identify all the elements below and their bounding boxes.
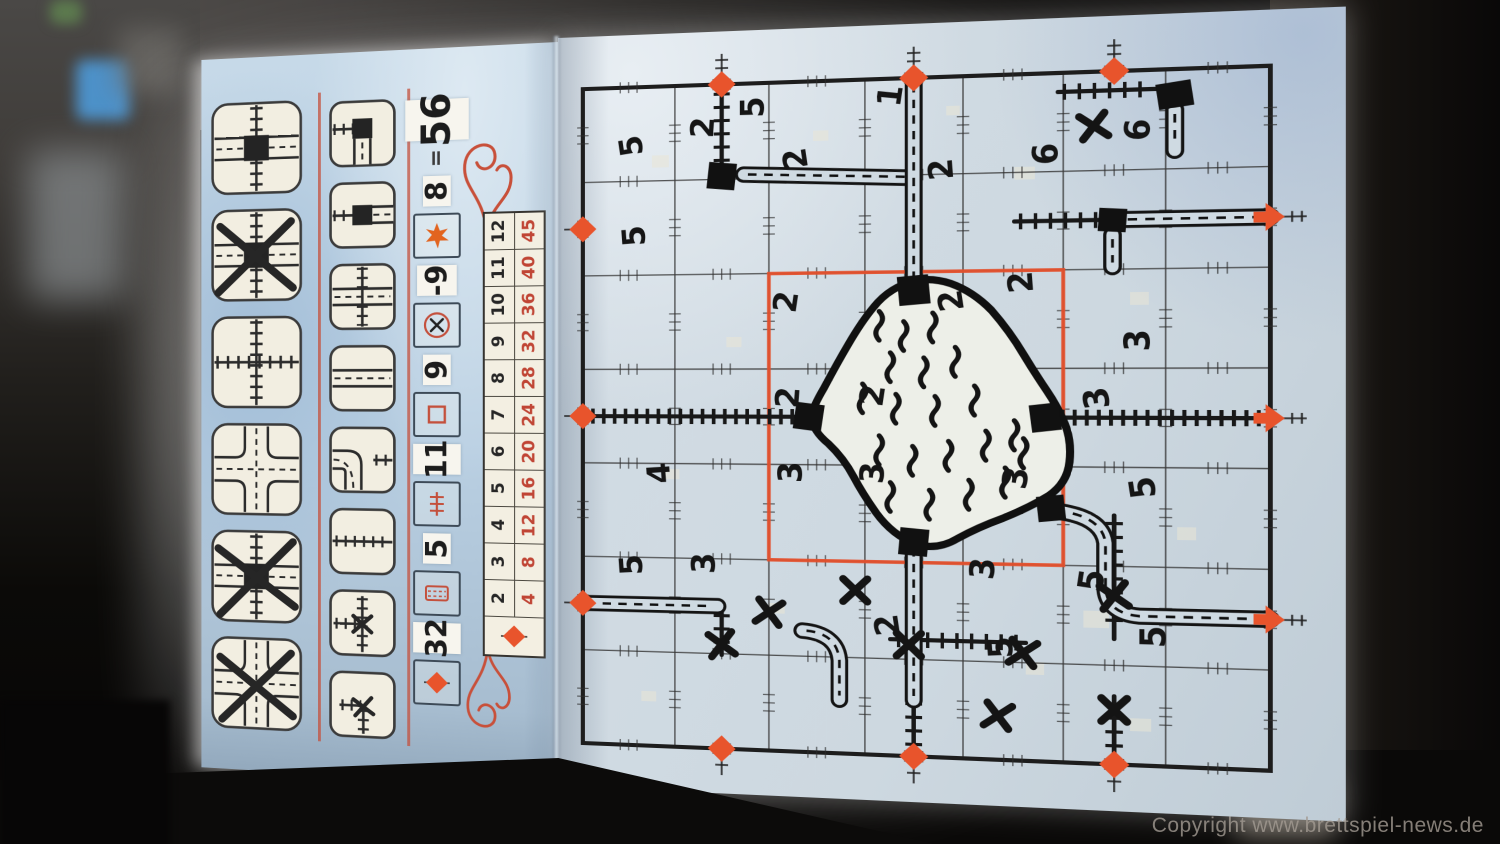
exits-table-row: 1036	[485, 286, 544, 323]
cell-number: 3	[1118, 329, 1159, 351]
score-entry: 8	[423, 175, 451, 206]
cell-number: 4	[640, 461, 678, 484]
cell-number: 2	[921, 157, 962, 182]
exits-count-cell: 12	[485, 213, 515, 249]
exits-diamond-icon	[485, 617, 544, 657]
cell-number: 3	[853, 461, 893, 485]
score-entry-value: 9	[423, 360, 452, 380]
station-corner-tile-icon	[328, 97, 398, 170]
exit-diamond-icon	[899, 742, 928, 770]
overpass-station-tile-crossed-icon	[207, 527, 307, 627]
exits-points-cell: 28	[515, 360, 544, 396]
score-entry: -9	[417, 265, 457, 296]
exits-points-cell: 12	[515, 507, 544, 543]
exit-diamond-icon	[1099, 57, 1129, 86]
exits-count-cell: 7	[485, 397, 515, 433]
longest-road-icon	[413, 570, 461, 617]
road-rail-crossing-tile-icon	[328, 261, 398, 332]
road-straight-tile-icon	[328, 343, 398, 413]
exits-table-row: 24	[485, 580, 544, 619]
exits-table-row: 1245	[485, 212, 544, 250]
play-board: 5552122662223223433355335255	[558, 7, 1346, 822]
errors-icon	[413, 302, 461, 348]
score-entry: 32	[413, 622, 461, 654]
exits-table-row: 516	[485, 470, 544, 508]
exits-points-cell: 24	[515, 397, 544, 433]
rail-crossroad-tile-icon	[207, 313, 307, 411]
equals-sign: =	[426, 149, 448, 168]
page-fold	[553, 36, 560, 788]
cell-number: 3	[686, 552, 723, 574]
longest-rail-icon	[413, 481, 461, 527]
grid-line	[583, 650, 1271, 670]
exits-count-cell: 6	[485, 434, 515, 470]
exits-count-cell: 5	[485, 470, 515, 506]
score-legend-page: 56=8-9911532 124511401036932828724620516…	[201, 42, 558, 788]
exits-count-cell: 2	[485, 580, 515, 617]
overpass-station-tile-crossed-icon	[207, 205, 307, 305]
exits-table-row: 932	[485, 323, 544, 360]
score-strip: 56=8-9911532	[411, 98, 463, 706]
exits-points-cell: 8	[515, 544, 544, 581]
exit-arrow-icon	[1254, 404, 1285, 432]
cell-number: 5	[734, 96, 772, 119]
exits-points-cell: 45	[515, 212, 544, 249]
road-corner-rail-tile-icon	[328, 425, 398, 496]
dice-tiles-column	[328, 97, 400, 742]
exits-points-cell: 36	[515, 286, 544, 322]
cell-number: 3	[772, 461, 810, 483]
exits-count-cell: 11	[485, 250, 515, 286]
rail-straight-tile-icon	[328, 506, 398, 578]
divider-rule	[318, 93, 320, 742]
exit-arrow-icon	[1254, 203, 1285, 232]
cell-number: 2	[1000, 270, 1042, 295]
score-entry: 9	[423, 355, 451, 386]
center-cells-icon	[413, 392, 461, 437]
cell-number: 3	[963, 556, 1004, 581]
cell-number: 2	[766, 289, 807, 315]
exit-diamond-icon	[1099, 750, 1129, 779]
cell-number: 6	[1117, 118, 1160, 142]
road-crossroad-tile-icon	[207, 420, 307, 519]
exits-count-cell: 8	[485, 360, 515, 396]
photo-scene: 56=8-9911532 124511401036932828724620516…	[0, 0, 1500, 844]
star-icon	[413, 213, 461, 259]
exits-points-cell: 20	[515, 434, 544, 470]
booklet: 56=8-9911532 124511401036932828724620516…	[0, 0, 1500, 844]
score-entry: 5	[423, 533, 451, 564]
exits-diamond-icon	[413, 659, 461, 706]
cell-number: 3	[1075, 385, 1119, 412]
cell-number: 5	[612, 133, 651, 160]
exits-points-cell: 4	[515, 581, 544, 618]
foreground-shadow	[0, 700, 170, 844]
exits-score-table: 1245114010369328287246205164123824	[483, 210, 546, 658]
score-entry-value: 8	[423, 181, 452, 202]
score-entry-value: 5	[423, 538, 452, 559]
exit-diamond-icon	[708, 71, 736, 98]
score-entry-value: -9	[423, 264, 452, 296]
road-crossroad-tile-crossed-icon	[207, 633, 307, 735]
exits-table-row: 724	[485, 397, 544, 434]
exits-table-row: 1140	[485, 249, 544, 287]
divider-rule	[407, 89, 409, 746]
exits-table-row: 620	[485, 434, 544, 471]
exits-points-cell: 16	[515, 470, 544, 506]
exits-table-row: 828	[485, 360, 544, 397]
cell-number: 5	[615, 224, 653, 248]
special-tiles-column	[207, 97, 308, 735]
cell-number: 2	[775, 145, 816, 172]
cell-number: 6	[1026, 142, 1066, 165]
rail-tee-tile-crossed-icon	[328, 587, 398, 659]
exit-diamond-icon	[569, 403, 596, 429]
exit-diamond-icon	[708, 735, 736, 763]
score-entry: 11	[413, 444, 461, 475]
error-x-mark	[843, 579, 867, 602]
rail-corner-tile-crossed-icon	[328, 668, 398, 741]
exits-table-row: 38	[485, 543, 544, 581]
exit-diamond-icon	[569, 216, 596, 243]
score-total-value: 56	[417, 92, 457, 148]
score-total: 56	[405, 98, 468, 142]
cell-number: 2	[684, 116, 723, 139]
cell-number: 1	[870, 83, 912, 108]
score-entry-value: 11	[423, 439, 452, 479]
exit-arrow-icon	[1254, 605, 1285, 634]
exit-diamond-icon	[569, 590, 596, 617]
exits-count-cell: 9	[485, 323, 515, 359]
station-straight-tile-icon	[328, 179, 398, 251]
exits-count-cell: 4	[485, 507, 515, 543]
watermark-text: Copyright www.brettspiel-news.de	[1152, 814, 1484, 838]
cell-number: 5	[1133, 625, 1174, 648]
error-x-mark	[984, 702, 1013, 729]
exits-count-cell: 10	[485, 287, 515, 323]
overpass-station-tile-icon	[207, 97, 307, 198]
cell-number: 2	[769, 386, 809, 410]
exits-points-cell: 32	[515, 323, 544, 359]
error-x-mark	[1079, 112, 1108, 139]
cell-number: 5	[1121, 474, 1165, 501]
exits-points-cell: 40	[515, 249, 544, 285]
board-page: 5552122662223223433355335255	[558, 7, 1346, 822]
cell-number: 5	[613, 553, 651, 576]
exits-table-row: 412	[485, 507, 544, 545]
score-entry-value: 32	[423, 618, 452, 659]
exits-count-cell: 3	[485, 543, 515, 579]
